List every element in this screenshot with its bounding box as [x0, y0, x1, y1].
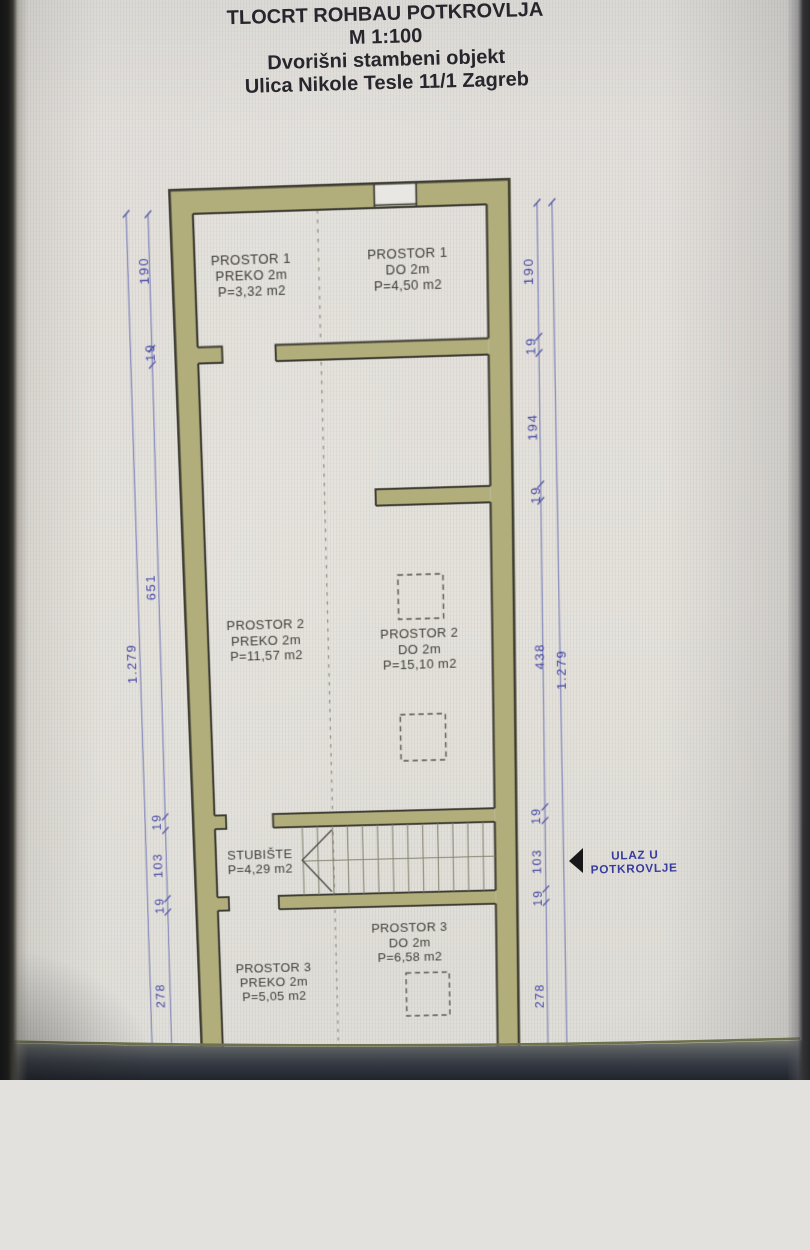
svg-text:POTKROVLJE: POTKROVLJE: [591, 860, 678, 876]
